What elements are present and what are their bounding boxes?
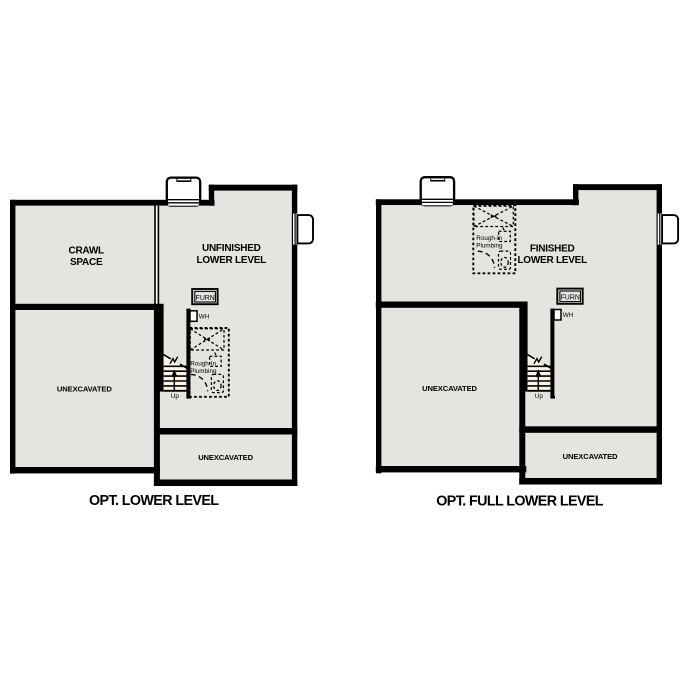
svg-text:Plumbing: Plumbing [190, 368, 217, 375]
svg-text:WH: WH [199, 313, 210, 320]
svg-text:UNEXCAVATED: UNEXCAVATED [563, 452, 618, 461]
svg-text:SPACE: SPACE [70, 257, 103, 268]
svg-text:FURN: FURN [196, 295, 215, 302]
svg-text:FINISHED: FINISHED [530, 243, 575, 254]
svg-text:UNEXCAVATED: UNEXCAVATED [57, 385, 112, 394]
svg-text:Rough-In: Rough-In [190, 360, 216, 367]
svg-text:Up: Up [535, 393, 544, 400]
svg-text:UNFINISHED: UNFINISHED [202, 243, 261, 254]
svg-text:UNEXCAVATED: UNEXCAVATED [198, 453, 253, 462]
svg-text:OPT. LOWER LEVEL: OPT. LOWER LEVEL [89, 493, 219, 509]
svg-text:Up: Up [171, 393, 180, 400]
svg-text:UNEXCAVATED: UNEXCAVATED [422, 384, 477, 393]
svg-text:LOWER LEVEL: LOWER LEVEL [197, 255, 267, 266]
svg-text:Plumbing: Plumbing [476, 243, 503, 250]
svg-text:OPT. FULL LOWER LEVEL: OPT. FULL LOWER LEVEL [436, 494, 604, 510]
svg-text:LOWER LEVEL: LOWER LEVEL [517, 255, 587, 266]
svg-text:Rough-In: Rough-In [476, 235, 502, 242]
svg-text:FURN: FURN [561, 295, 580, 302]
svg-text:WH: WH [563, 312, 574, 319]
svg-text:CRAWL: CRAWL [68, 245, 104, 256]
